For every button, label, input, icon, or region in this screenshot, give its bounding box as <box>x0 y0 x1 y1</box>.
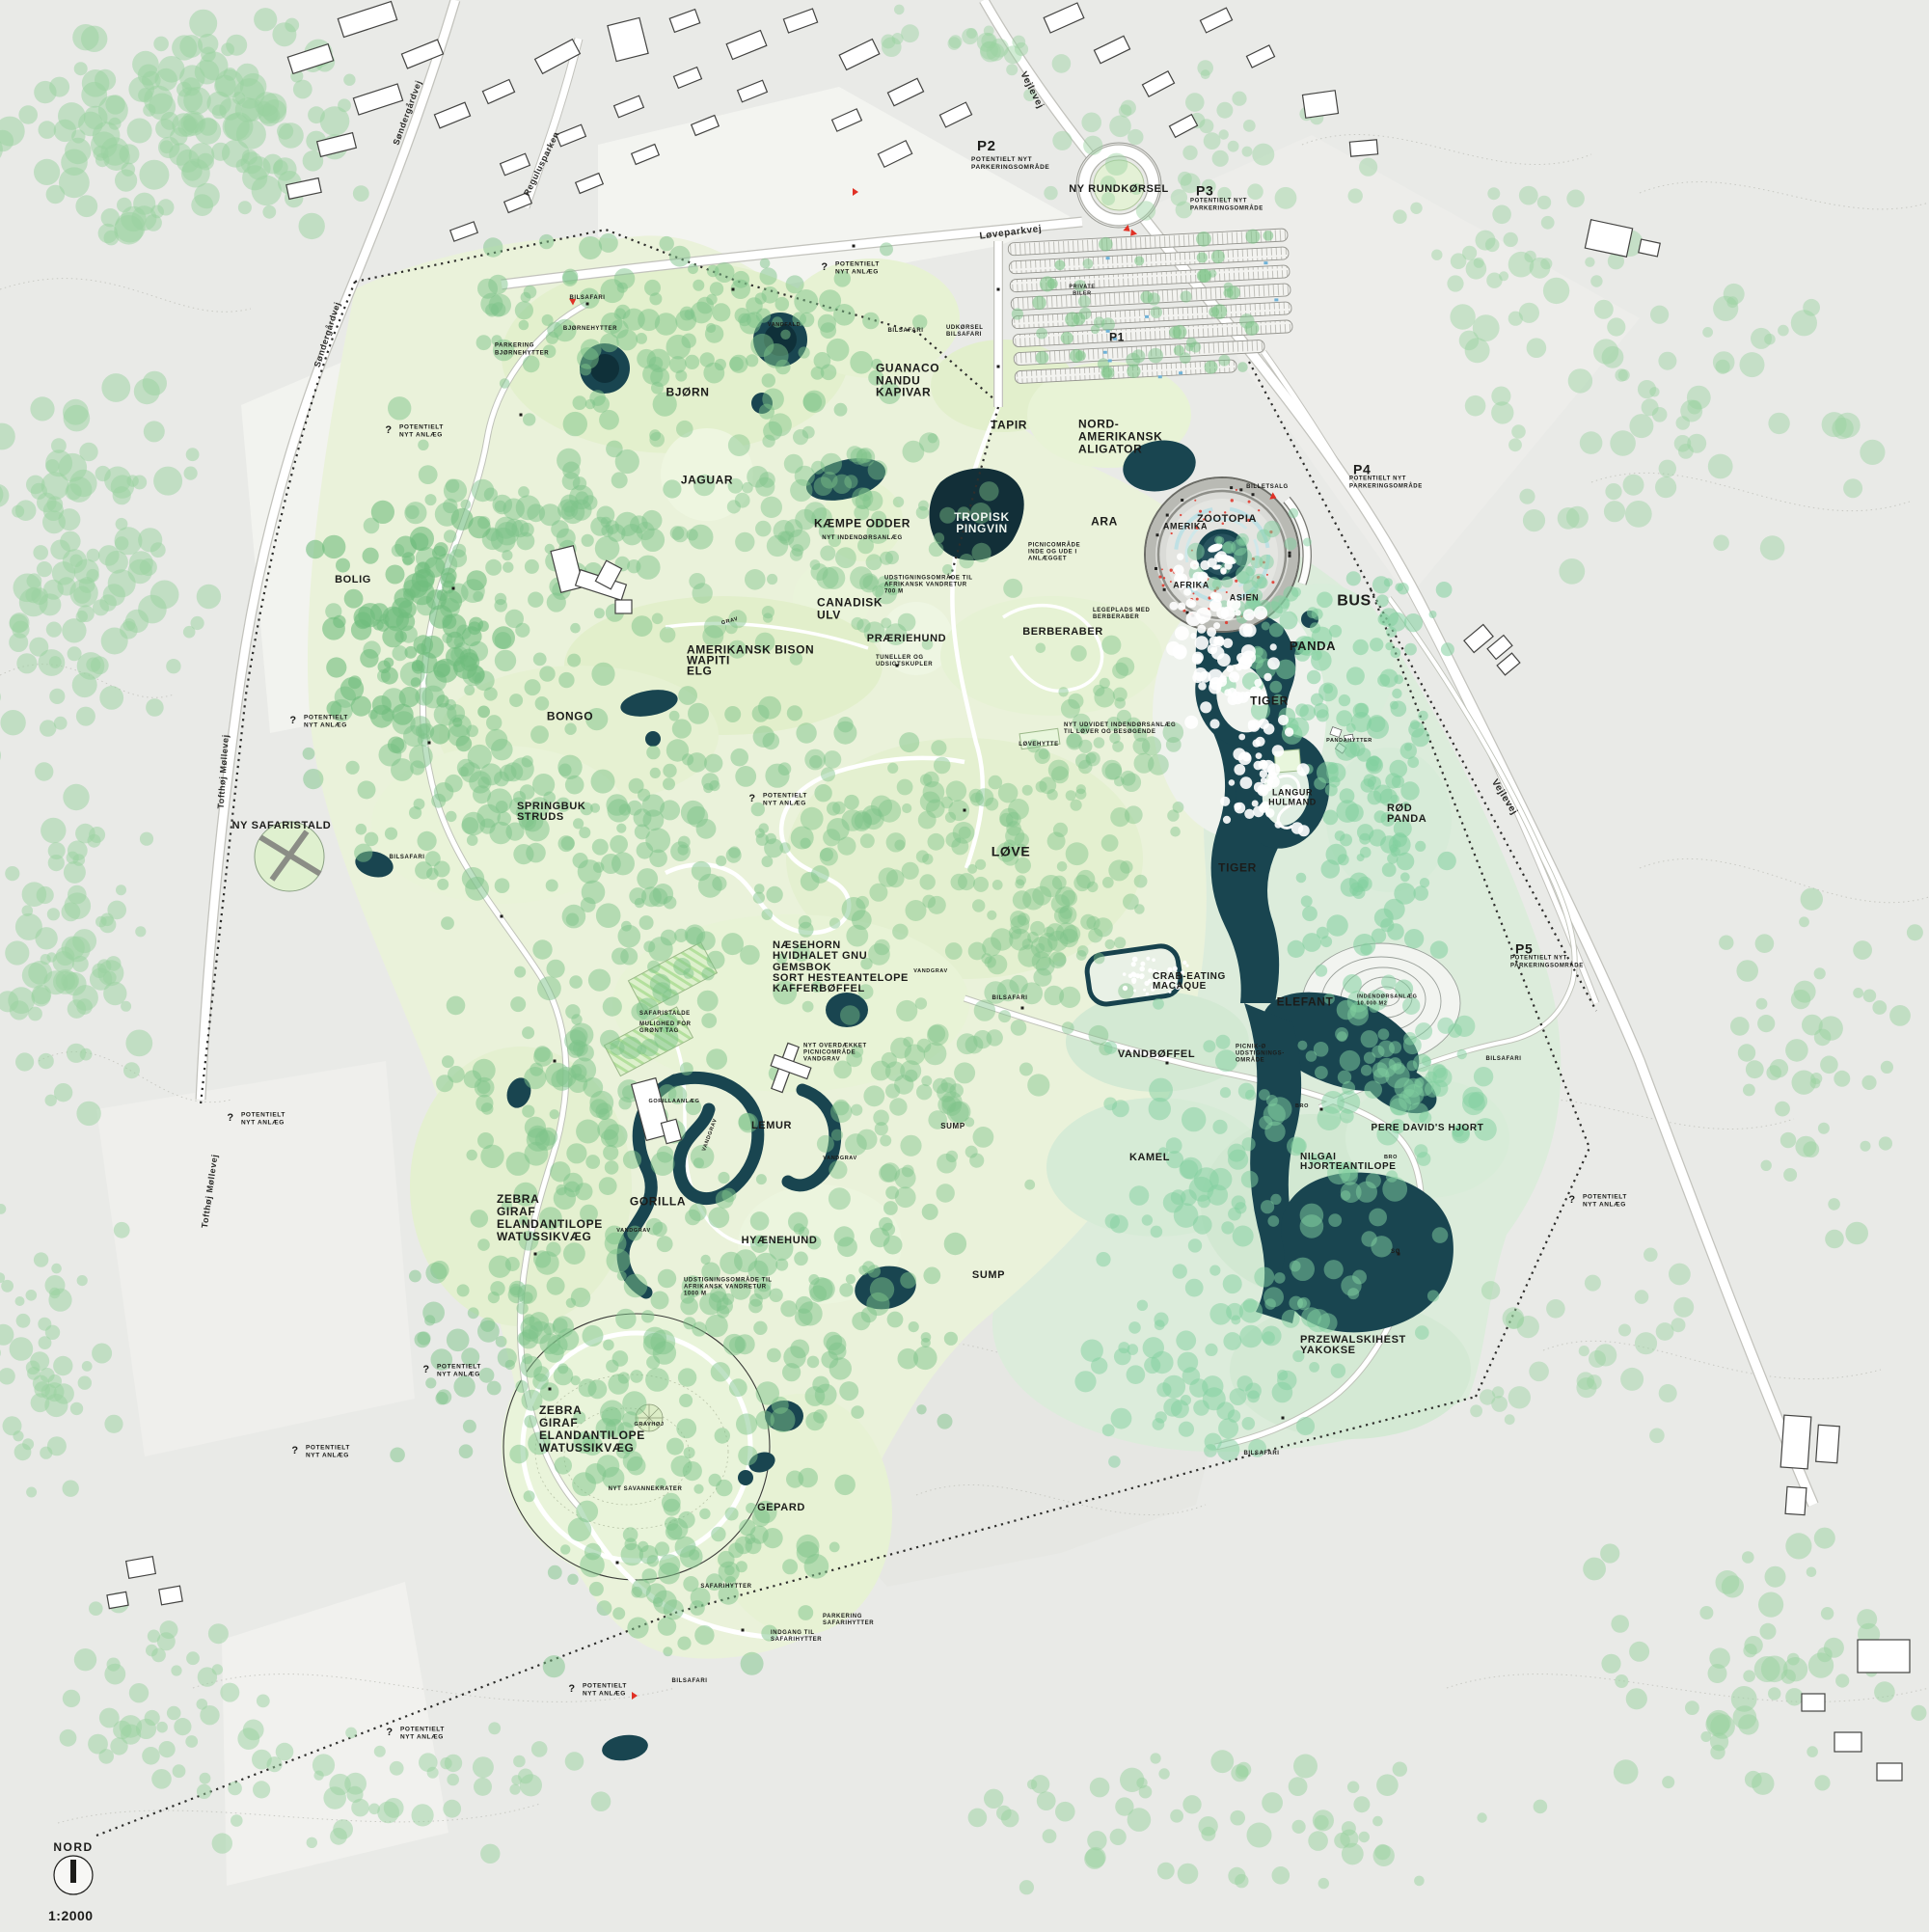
site-plan-map: P2POTENTIELT NYT PARKERINGSOMRÅDENY RUND… <box>0 0 1929 1932</box>
basemap-canvas <box>0 0 1929 1932</box>
north-compass <box>54 1856 93 1894</box>
scale-label: 1:2000 <box>48 1908 94 1923</box>
north-label: NORD <box>44 1840 102 1854</box>
